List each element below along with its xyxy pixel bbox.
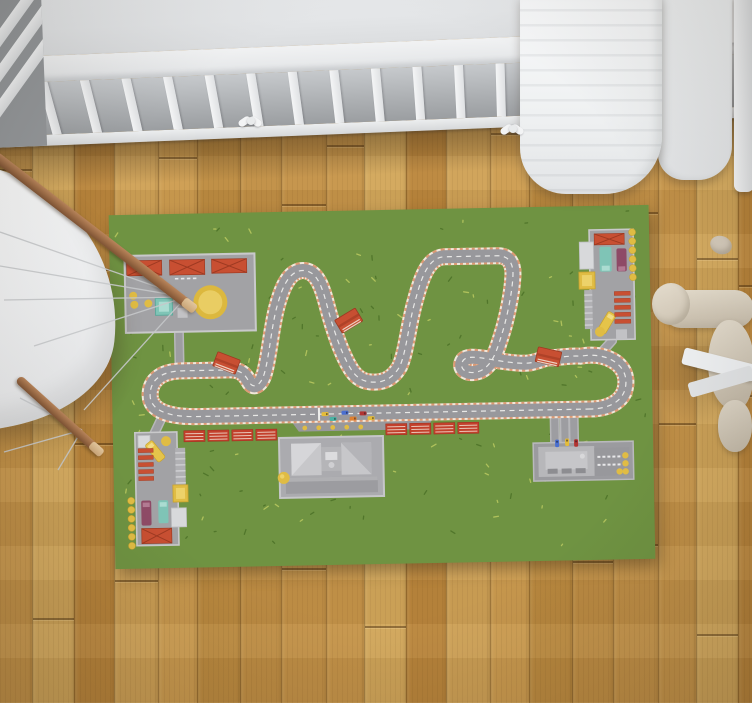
grass-tuft (407, 392, 410, 396)
car-body (555, 440, 559, 448)
yellow-marker-dot (128, 515, 135, 522)
yellow-building-roof (176, 488, 185, 499)
yellow-marker-dot (629, 265, 636, 272)
car-body (565, 438, 569, 446)
grass-tuft (459, 438, 463, 441)
grass-tuft (462, 220, 464, 223)
blanket-back-fold (658, 0, 732, 180)
grass-tuft (519, 371, 521, 375)
grass-tuft (577, 366, 582, 367)
grass-tuft (375, 276, 377, 280)
grass-tuft (272, 540, 276, 544)
yellow-marker-dot (629, 229, 636, 236)
grass-tuft (114, 232, 118, 238)
grass-tuft (216, 227, 220, 232)
parking-dash (603, 464, 606, 466)
race-car (350, 416, 357, 420)
grass-tuft (251, 344, 254, 349)
race-car (321, 412, 328, 416)
grass-tuft (427, 319, 431, 322)
grass-tuft (605, 495, 608, 500)
bumper-bow (500, 122, 526, 140)
grass-tuft (292, 316, 296, 319)
grandstand-block (232, 429, 253, 440)
red-container (615, 312, 631, 316)
grass-tuft (235, 453, 239, 455)
grass-tuft (359, 308, 363, 313)
grass-tuft (391, 354, 392, 360)
car-cockpit (334, 418, 336, 420)
grandstand-block (458, 422, 479, 433)
garage-door (548, 469, 558, 474)
grass-tuft (560, 320, 562, 326)
grass-tuft (213, 531, 216, 533)
grass-tuft (459, 335, 462, 339)
grass-tuft (393, 470, 397, 472)
red-container (614, 291, 630, 295)
grass-tuft (299, 519, 303, 522)
car-cockpit (566, 440, 568, 442)
pit-court-pad (325, 452, 337, 460)
grass-tuft (330, 498, 336, 501)
teal-truck-cab (160, 502, 167, 507)
garage-roof-top (545, 451, 587, 470)
car-cockpit (364, 412, 366, 414)
grass-tuft (281, 370, 286, 374)
grass-tuft (310, 511, 315, 515)
garage-door (562, 468, 572, 473)
grass-tuft (541, 505, 543, 509)
gray-crate (616, 329, 627, 339)
grass-tuft (510, 493, 512, 499)
yellow-marker-dot (128, 497, 135, 504)
compound-top-right (578, 229, 635, 340)
grass-tuft (369, 344, 372, 346)
parking-dash (617, 455, 620, 457)
grandstand-block (410, 423, 431, 434)
grass-tuft (305, 350, 308, 356)
crib-slat (329, 66, 345, 129)
race-car (330, 417, 337, 421)
grass-tuft (185, 536, 188, 539)
parking-dash (607, 456, 610, 458)
race-track-rug (109, 205, 656, 569)
parking-dash (598, 464, 601, 466)
grass-tuft (448, 276, 453, 282)
red-container (614, 298, 630, 302)
grass-tuft (327, 382, 331, 385)
rug-design (109, 205, 656, 569)
white-building (579, 242, 594, 269)
race-car (341, 411, 348, 415)
grass-tuft (450, 530, 456, 534)
grass-tuft (248, 228, 252, 234)
grass-tuft (561, 384, 566, 386)
parking-dash (602, 456, 605, 458)
grass-tuft (209, 466, 214, 472)
yellow-marker-dot (128, 533, 135, 540)
red-container (614, 305, 630, 309)
plank-seam (33, 618, 75, 620)
car-cockpit (575, 440, 577, 442)
pit-building (277, 436, 384, 498)
grass-tuft (553, 320, 558, 322)
grass-tuft (263, 504, 266, 507)
garage-door (576, 468, 586, 473)
car-cockpit (326, 413, 328, 415)
yellow-marker-dot (629, 247, 636, 254)
grass-tuft (561, 543, 564, 546)
grass-tuft (370, 305, 374, 309)
grass-tuft (418, 353, 423, 356)
parking-dash (193, 278, 197, 280)
grass-tuft (572, 300, 574, 306)
grass-tuft (274, 503, 279, 507)
grass-tuft (431, 443, 437, 447)
grass-tuft (209, 384, 213, 388)
grass-tuft (224, 237, 229, 242)
crib-slat (371, 64, 386, 127)
stairs (175, 448, 186, 487)
parking-dash (187, 278, 191, 280)
grass-tuft (574, 375, 577, 379)
red-container (615, 319, 631, 323)
parking-dash (613, 464, 616, 466)
grass-tuft (397, 314, 403, 319)
parked-car (555, 440, 559, 448)
grass-tuft (569, 271, 573, 275)
yellow-marker-dot (629, 238, 636, 245)
crib-slat (454, 61, 466, 123)
crib-slat (121, 74, 144, 136)
grass-tuft (447, 343, 451, 346)
grass-tuft (248, 358, 250, 363)
car-cockpit (354, 418, 356, 420)
crib-slat (162, 72, 183, 135)
parked-car (574, 439, 578, 447)
parking-dash (181, 278, 185, 280)
plush-toy (652, 228, 752, 458)
grass-tuft (169, 351, 171, 357)
grass-tuft (524, 222, 528, 224)
grass-tuft (302, 324, 303, 330)
plank-seam (365, 626, 407, 628)
stairs (584, 290, 593, 329)
bumper-bow (238, 114, 264, 132)
parking-dash (597, 456, 600, 458)
grass-tuft (280, 257, 284, 260)
grass-tuft (476, 444, 482, 447)
grass-tuft (349, 506, 351, 509)
grass-tuft (363, 515, 365, 519)
parking-dash (608, 464, 611, 466)
grass-tuft (485, 463, 489, 468)
garage-building (533, 441, 634, 481)
grandstand-block (434, 423, 455, 434)
car-cockpit (556, 441, 558, 443)
grass-tuft (496, 500, 498, 504)
teal-truck-cab (602, 266, 610, 271)
plank-seam (115, 580, 159, 582)
grass-tuft (521, 291, 525, 296)
maroon-truck-cab (618, 266, 625, 271)
grandstand-block (184, 430, 205, 441)
grass-tuft (487, 300, 489, 304)
plank-seam (697, 634, 739, 636)
parking-dash (618, 463, 621, 465)
grass-tuft (484, 472, 489, 475)
grass-tuft (463, 291, 469, 293)
grass-tuft (356, 253, 361, 256)
grandstand-block (386, 424, 407, 435)
grass-tuft (203, 472, 209, 476)
grass-tuft (440, 228, 444, 230)
quilted-blanket (520, 0, 662, 194)
plush-foot (718, 400, 752, 452)
plank-seam (282, 204, 327, 206)
yellow-marker-dot (128, 506, 135, 513)
grass-tuft (213, 228, 216, 229)
grass-tuft (549, 276, 553, 279)
crib-slat (412, 63, 425, 125)
parking-dash (175, 278, 179, 280)
white-building (171, 508, 186, 527)
grass-tuft (345, 279, 350, 284)
grass-tuft (201, 516, 204, 521)
crib-slat (287, 67, 304, 130)
grass-tuft (378, 315, 379, 321)
yellow-building-roof (582, 275, 592, 286)
grass-tuft (309, 381, 315, 384)
grass-tuft (493, 516, 499, 518)
plank-seam (573, 561, 614, 563)
grass-tuft (316, 335, 319, 336)
plank-seam (282, 568, 327, 570)
yellow-marker-dot (128, 542, 135, 549)
crib-end-panel (0, 0, 47, 148)
yellow-marker-dot (128, 524, 135, 531)
grass-tuft (298, 286, 302, 289)
start-finish-line (318, 408, 320, 421)
grass-tuft (409, 388, 412, 393)
plush-paw (652, 283, 690, 325)
grass-tuft (472, 294, 474, 298)
yellow-marker-dot (629, 274, 636, 281)
plush-ear (708, 233, 735, 257)
grass-tuft (582, 338, 585, 343)
grass-tuft (603, 519, 607, 523)
parking-dash (612, 456, 615, 458)
grandstand-block (256, 429, 277, 440)
race-car (359, 411, 366, 415)
grass-tuft (225, 391, 229, 395)
grass-tuft (493, 443, 496, 448)
car-cockpit (372, 417, 374, 419)
grass-tuft (244, 529, 247, 535)
grass-tuft (210, 450, 215, 452)
grass-tuft (199, 493, 201, 496)
grass-tuft (569, 335, 572, 337)
grass-tuft (371, 255, 373, 261)
race-car (368, 416, 375, 420)
car-cockpit (346, 412, 348, 414)
yellow-marker-dot (629, 256, 636, 263)
grass-tuft (625, 210, 629, 212)
crib-corner-post (734, 0, 752, 192)
crib-slat (495, 59, 506, 121)
grass-tuft (588, 370, 592, 373)
grass-tuft (526, 375, 529, 380)
grass-tuft (529, 478, 532, 483)
grandstand-block (208, 430, 229, 441)
parked-car (565, 438, 569, 446)
crib-slat (204, 71, 224, 134)
car-body (574, 439, 578, 447)
crib-slat (79, 76, 103, 137)
grass-tuft (423, 490, 427, 495)
maroon-truck-cab (143, 502, 150, 507)
grass-tuft (239, 490, 243, 492)
